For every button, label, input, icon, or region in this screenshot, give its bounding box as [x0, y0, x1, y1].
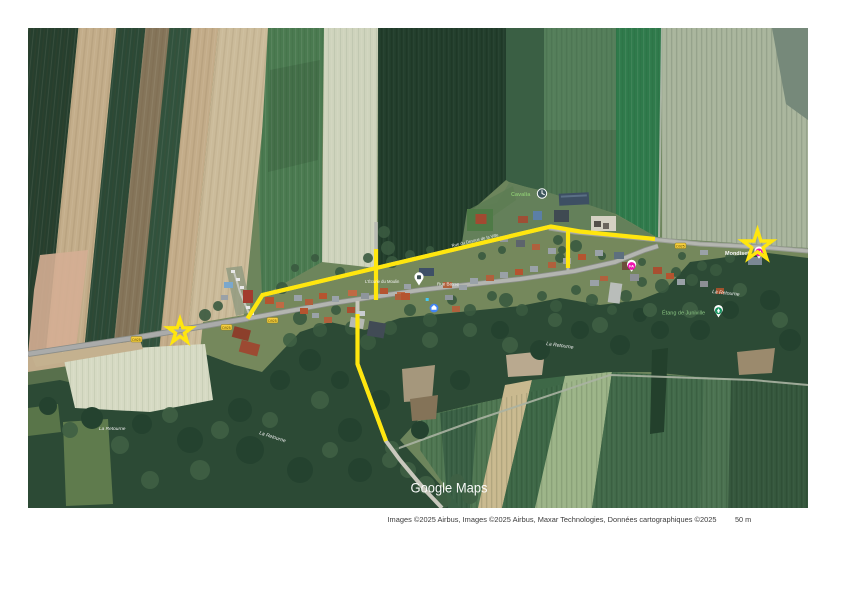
svg-text:D925: D925	[222, 326, 230, 330]
svg-text:La Retourne: La Retourne	[99, 426, 126, 432]
svg-text:Google Maps: Google Maps	[411, 479, 488, 495]
svg-text:Mondiset: Mondiset	[725, 251, 749, 257]
svg-text:Étang de Juniville: Étang de Juniville	[662, 310, 705, 317]
svg-text:D925: D925	[132, 338, 140, 342]
svg-text:FA: FA	[629, 265, 634, 269]
svg-text:D925: D925	[676, 245, 684, 249]
svg-text:50 m: 50 m	[735, 515, 751, 524]
svg-text:Cavalia: Cavalia	[511, 192, 531, 198]
svg-text:D925: D925	[268, 319, 276, 323]
svg-text:Rue Basse: Rue Basse	[437, 282, 460, 287]
svg-text:L'Écurie du Moulin: L'Écurie du Moulin	[365, 279, 400, 284]
svg-text:Images ©2025 Airbus, Images ©2: Images ©2025 Airbus, Images ©2025 Airbus…	[388, 515, 717, 524]
